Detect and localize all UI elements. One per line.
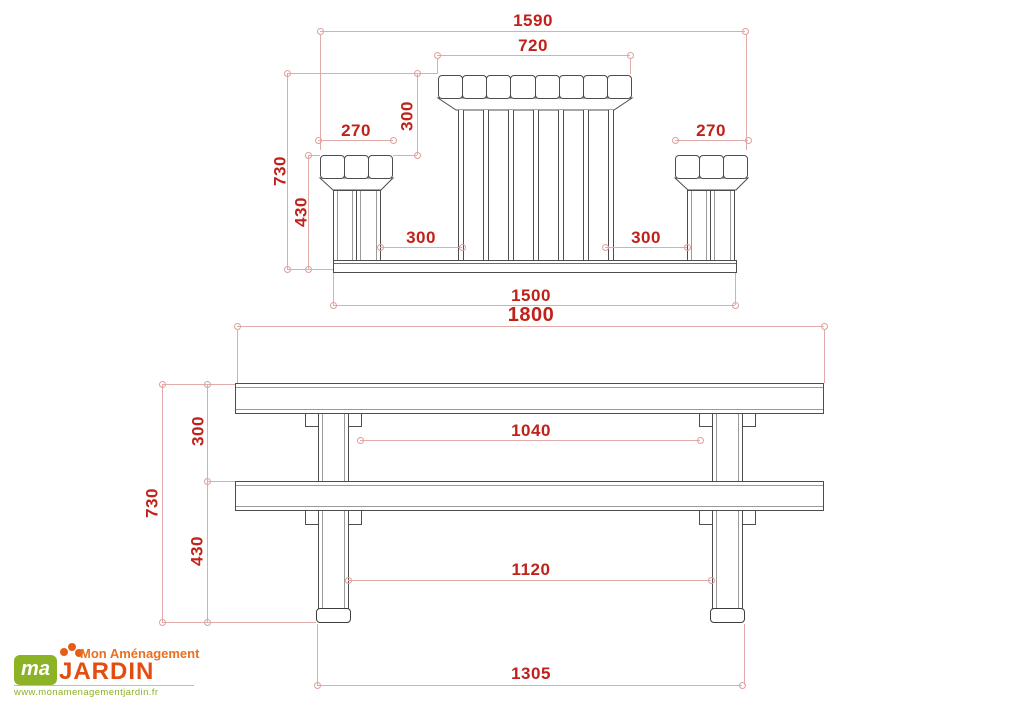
logo-divider bbox=[14, 685, 194, 686]
front-plank bbox=[608, 110, 614, 260]
logo-name: JARDIN bbox=[59, 658, 154, 686]
logo-monogram: ma bbox=[21, 658, 50, 680]
dim-front-seat-width-left: 270 bbox=[341, 122, 371, 139]
dim-front-seat-width-right: 270 bbox=[696, 122, 726, 139]
cleat bbox=[742, 510, 756, 525]
tabletop-slat bbox=[438, 75, 463, 99]
dim-front-gap-left: 300 bbox=[406, 229, 436, 246]
side-right-foot bbox=[710, 608, 745, 623]
dim-side-foot-span: 1305 bbox=[511, 665, 551, 682]
front-left-bench-slats bbox=[320, 155, 393, 179]
tabletop-slat bbox=[462, 75, 487, 99]
dim-side-inner-span-upper: 1040 bbox=[511, 422, 551, 439]
brand-logo: ma Mon Aménagement JARDIN www.monamenage… bbox=[12, 640, 212, 700]
side-bench-seat bbox=[235, 481, 824, 511]
support-trapezoids bbox=[0, 0, 1024, 705]
dim-front-top-to-seat: 300 bbox=[399, 101, 416, 131]
cleat bbox=[742, 413, 756, 427]
side-left-foot bbox=[316, 608, 351, 623]
tabletop-slat bbox=[583, 75, 608, 99]
right-bench-support bbox=[675, 178, 748, 190]
front-tabletop-slats bbox=[438, 75, 632, 99]
side-left-leg-upper bbox=[318, 413, 349, 482]
tabletop-slat bbox=[510, 75, 535, 99]
front-right-bench-leg bbox=[687, 190, 711, 261]
cleat bbox=[305, 510, 319, 525]
cleat bbox=[348, 413, 362, 427]
bench-slat bbox=[344, 155, 369, 179]
logo-monogram-badge: ma bbox=[14, 655, 57, 685]
front-plank bbox=[458, 110, 464, 260]
front-plank bbox=[508, 110, 514, 260]
front-plank bbox=[533, 110, 539, 260]
cleat bbox=[305, 413, 319, 427]
cleat bbox=[699, 413, 713, 427]
front-left-bench-leg bbox=[356, 190, 381, 261]
front-plank bbox=[558, 110, 564, 260]
bench-slat bbox=[699, 155, 724, 179]
side-left-leg-lower bbox=[318, 509, 349, 610]
dim-front-overall-width: 1590 bbox=[513, 12, 553, 29]
dim-front-tabletop-width: 720 bbox=[518, 37, 548, 54]
front-base-beam bbox=[333, 260, 737, 273]
tabletop-slat bbox=[535, 75, 560, 99]
front-right-bench-leg bbox=[710, 190, 735, 261]
front-plank bbox=[483, 110, 489, 260]
dim-side-top-to-seat: 300 bbox=[190, 416, 207, 446]
dim-side-table-length: 1800 bbox=[508, 305, 555, 325]
side-tabletop bbox=[235, 383, 824, 414]
front-left-bench-leg bbox=[333, 190, 357, 261]
dim-front-gap-right: 300 bbox=[631, 229, 661, 246]
dim-front-overall-height: 730 bbox=[272, 156, 289, 186]
tabletop-slat bbox=[559, 75, 584, 99]
side-right-leg-upper bbox=[712, 413, 743, 482]
logo-website: www.monamenagementjardin.fr bbox=[14, 687, 158, 698]
cleat bbox=[348, 510, 362, 525]
tabletop-slat bbox=[607, 75, 632, 99]
dim-front-seat-height: 430 bbox=[293, 197, 310, 227]
dim-front-base-length: 1500 bbox=[511, 287, 551, 304]
bench-slat bbox=[320, 155, 345, 179]
front-right-bench-slats bbox=[675, 155, 748, 179]
bench-slat bbox=[723, 155, 748, 179]
left-bench-support bbox=[320, 178, 393, 190]
front-plank bbox=[583, 110, 589, 260]
bench-slat bbox=[368, 155, 393, 179]
dim-side-seat-height: 430 bbox=[189, 536, 206, 566]
dim-side-inner-span-lower: 1120 bbox=[512, 561, 551, 578]
tabletop-support bbox=[438, 98, 632, 110]
cleat bbox=[699, 510, 713, 525]
bench-slat bbox=[675, 155, 700, 179]
clover-icon bbox=[60, 648, 68, 656]
tabletop-slat bbox=[486, 75, 511, 99]
dimension-drawing-canvas: 1590 720 300 270 270 730 430 300 300 150… bbox=[0, 0, 1024, 705]
side-right-leg-lower bbox=[712, 509, 743, 610]
dim-side-overall-height: 730 bbox=[144, 488, 161, 518]
